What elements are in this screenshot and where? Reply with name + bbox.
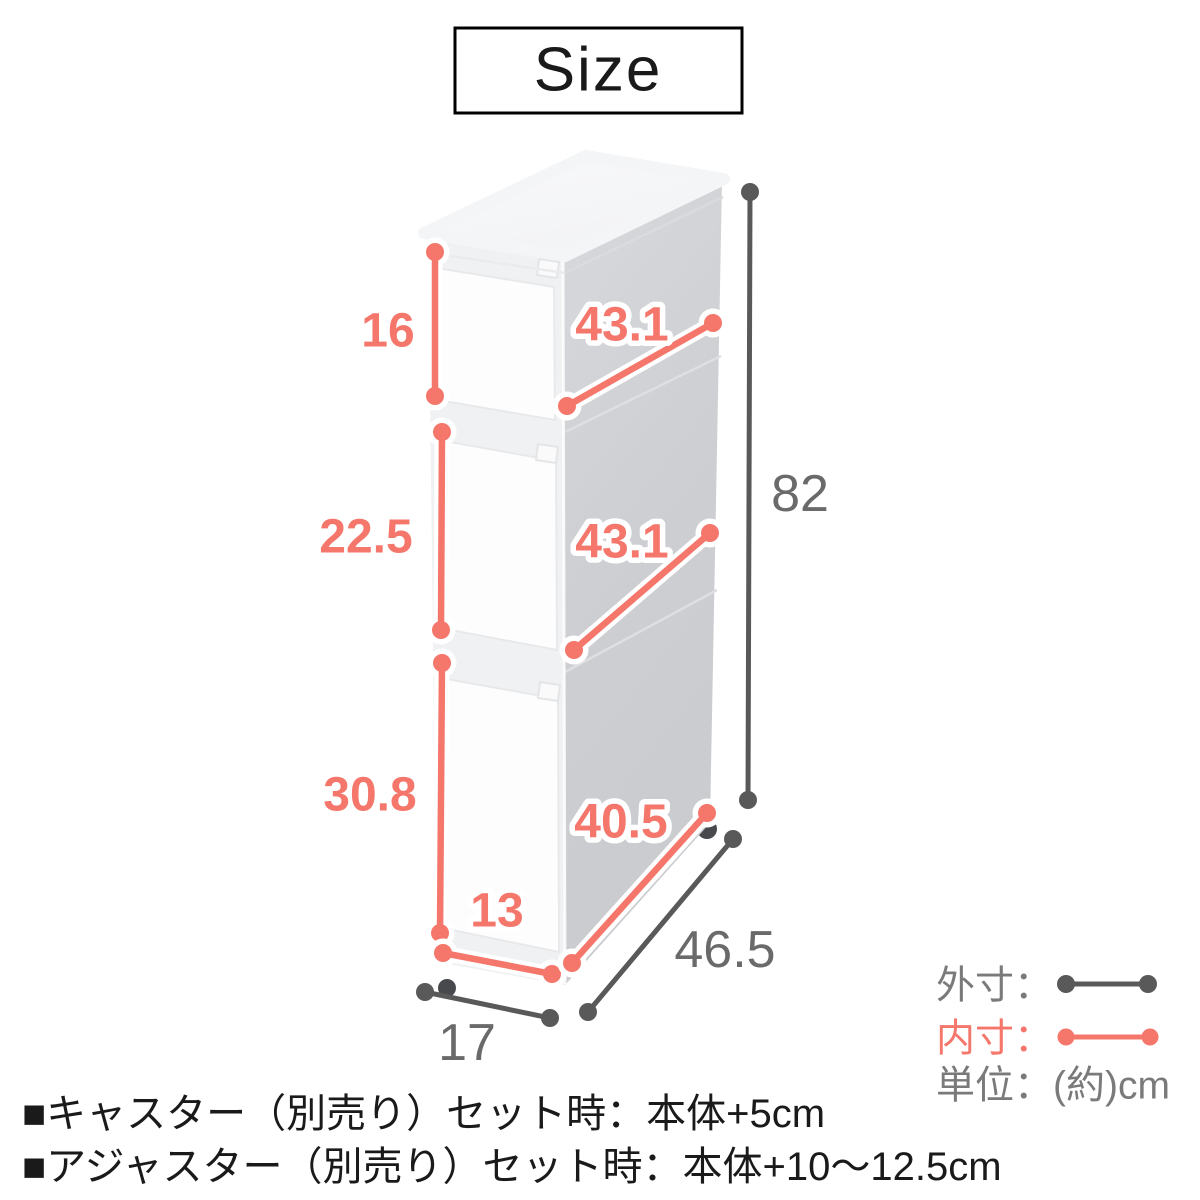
size-title-box: Size [455,28,742,113]
dim-label-82: 82 [771,465,829,523]
legend-outer-dot-left [1057,975,1075,993]
dim-label-46-5: 46.5 [674,921,775,979]
dim-label-30-8: 30.8 [323,769,416,822]
dim-label-13: 13 [470,885,523,938]
note-adjuster: ■アジャスター（別売り）セット時：本体+10〜12.5cm [22,1145,1002,1189]
legend-unit-label: 単位：(約)cm [936,1065,1170,1108]
size-diagram: Size [0,0,1200,1200]
drawer2-handle [536,444,558,463]
drawer2-front [439,440,557,650]
legend-outer-dot-right [1139,975,1157,993]
dim-label-40-5: 40.5 [574,796,667,849]
drawer3-handle [538,682,560,701]
legend-inner-label: 内寸： [936,1018,1053,1061]
page-title: Size [534,36,663,105]
dim-label-43-1-mid: 43.1 [575,516,668,569]
note-caster: ■キャスター（別売り）セット時：本体+5cm [22,1092,825,1136]
dim-label-43-1-top: 43.1 [575,299,668,352]
legend-inner-dot-right [1142,1029,1159,1046]
corner-highlight [563,258,565,984]
legend-inner-dot-left [1058,1029,1075,1046]
legend-outer-label: 外寸： [936,965,1053,1008]
drawer1-front [437,268,555,420]
dim-label-16: 16 [361,305,414,358]
legend: 外寸： 内寸： 単位：(約)cm [936,965,1170,1108]
legend-row-unit: 単位：(約)cm [936,1065,1170,1108]
dim-label-22-5: 22.5 [319,511,412,564]
dim-label-17: 17 [438,1014,496,1072]
